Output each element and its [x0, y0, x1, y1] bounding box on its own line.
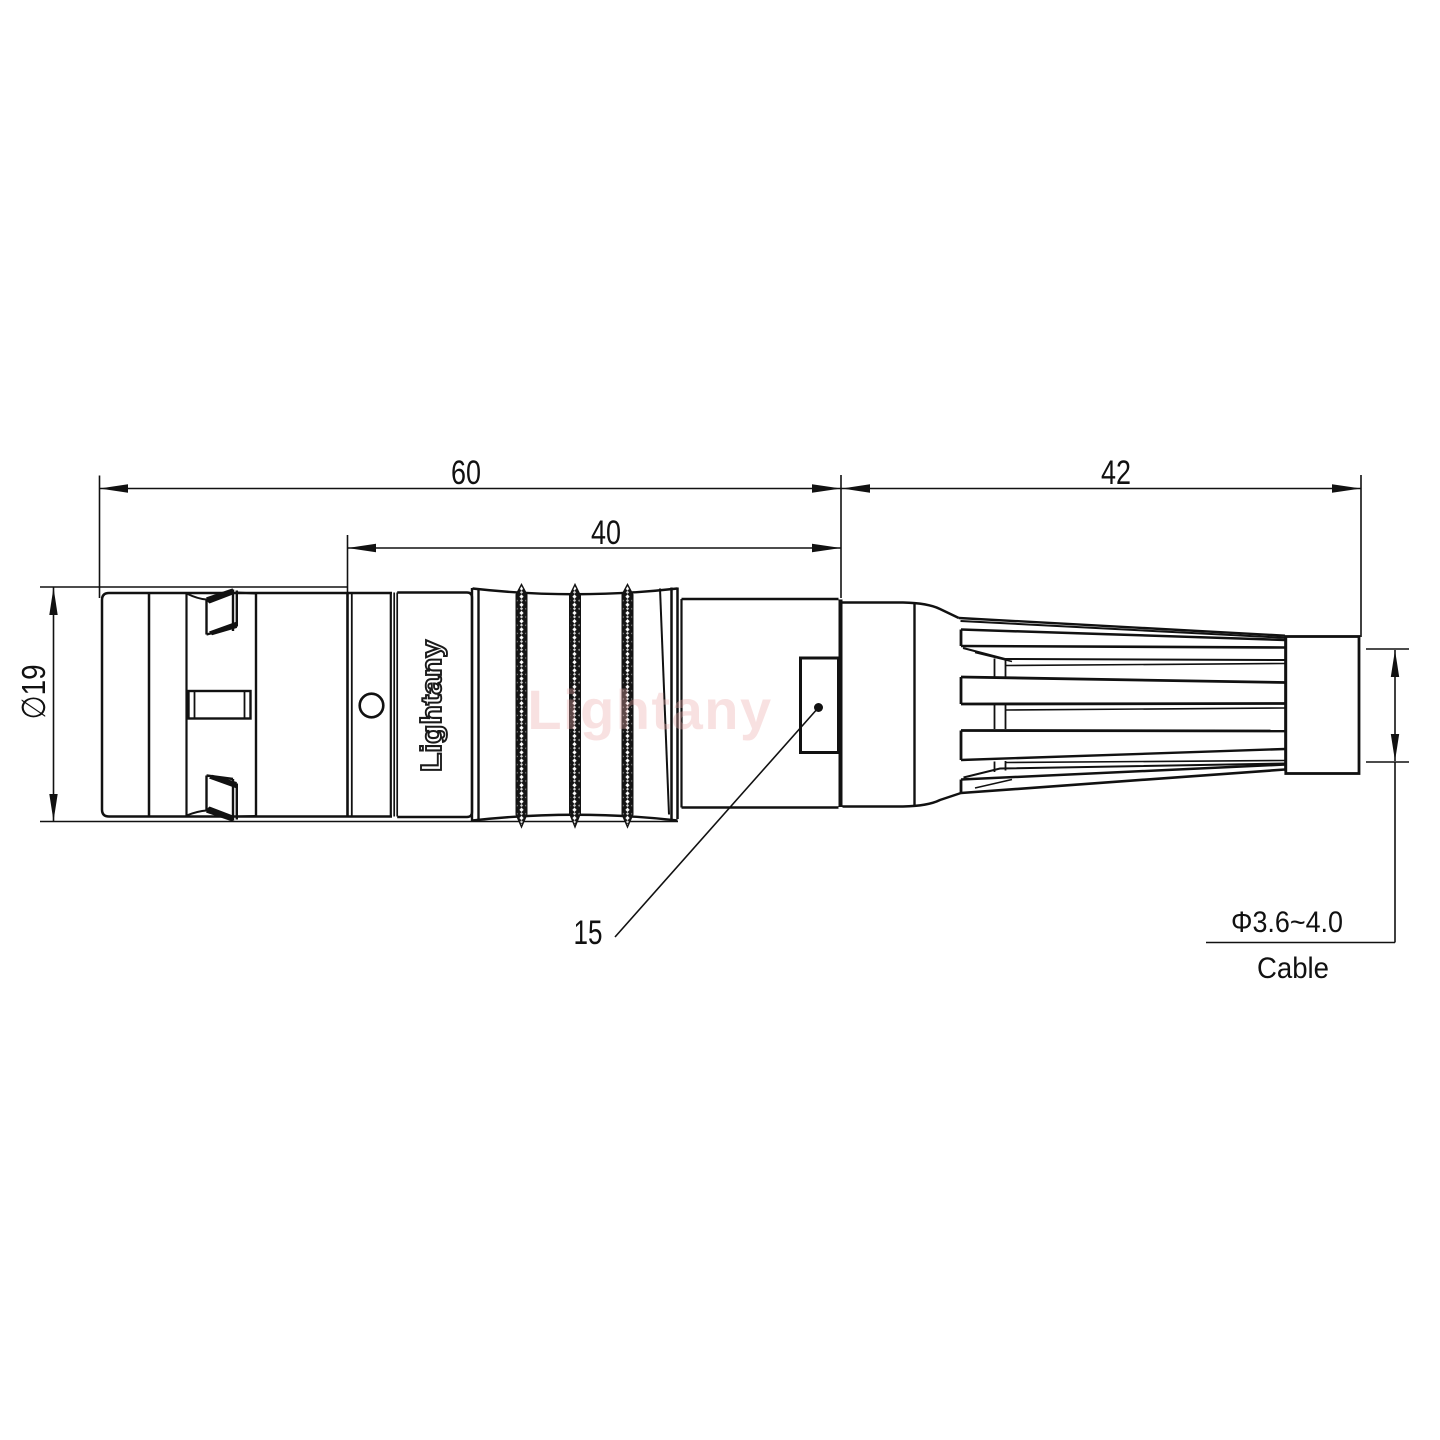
svg-text:42: 42	[1101, 454, 1131, 492]
svg-text:Φ3.6~4.0: Φ3.6~4.0	[1231, 906, 1343, 939]
svg-text:15: 15	[574, 914, 603, 952]
svg-text:Lightany: Lightany	[527, 678, 772, 741]
svg-text:∅19: ∅19	[15, 665, 52, 720]
svg-text:40: 40	[591, 514, 621, 552]
svg-text:Cable: Cable	[1257, 952, 1329, 985]
svg-text:Lightany: Lightany	[416, 640, 448, 772]
svg-text:60: 60	[451, 454, 481, 492]
